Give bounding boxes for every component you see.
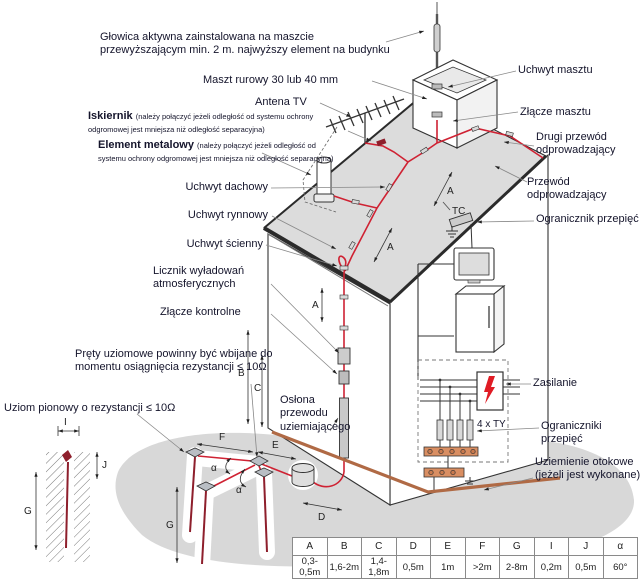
label-down-conductor: Przewód odprowadzający xyxy=(527,176,640,203)
mast-joint xyxy=(432,112,442,117)
col-f: F xyxy=(465,538,500,556)
tv-set xyxy=(454,248,494,283)
spark-gap-title: Iskiernik xyxy=(88,110,133,122)
val-b: 1,6-2m xyxy=(327,556,362,579)
fridge xyxy=(456,286,504,352)
col-j: J xyxy=(569,538,604,556)
dim-f: F xyxy=(219,432,225,443)
table-header-row: A B C D E F G I J α xyxy=(293,538,638,556)
label-ring-earth: Uziemienie otokowe (jeżeli jest wykonane… xyxy=(535,456,640,483)
val-e: 1m xyxy=(431,556,466,579)
active-head xyxy=(434,24,440,52)
label-mast-joint: Złącze masztu xyxy=(520,106,591,119)
vertical-earth-detail xyxy=(46,450,90,562)
label-surge-arrester: Ogranicznik przepięć xyxy=(536,213,640,226)
label-surge-arresters: Ograniczniki przepięć xyxy=(541,420,640,447)
dim-alpha2: α xyxy=(236,485,242,496)
dim-d: D xyxy=(318,512,325,523)
val-g: 2-8m xyxy=(500,556,535,579)
lightning-protection-diagram: B C A A A F E D G G I J α α TC xyxy=(0,0,640,579)
col-alpha: α xyxy=(603,538,638,556)
metal-element-title: Element metalowy xyxy=(98,139,194,151)
dim-g-left: G xyxy=(24,506,32,517)
label-tv-antenna: Antena TV xyxy=(255,96,307,109)
lightning-counter xyxy=(338,348,350,364)
col-i: I xyxy=(534,538,569,556)
col-g: G xyxy=(500,538,535,556)
mast-bracket xyxy=(432,84,442,89)
label-metal-element: Element metalowy (należy połączyć jeżeli… xyxy=(98,139,336,166)
dim-g-right: G xyxy=(166,520,174,531)
col-b: B xyxy=(327,538,362,556)
dim-e: E xyxy=(272,440,279,451)
dim-alpha1: α xyxy=(211,463,217,474)
val-j: 0,5m xyxy=(569,556,604,579)
dim-a-wall: A xyxy=(312,300,319,311)
dim-a-roof2: A xyxy=(387,242,394,253)
val-c: 1,4-1,8m xyxy=(362,556,397,579)
val-alpha: 60° xyxy=(603,556,638,579)
inspection-well xyxy=(292,464,314,487)
label-conductor-cover: Osłona przewodu uziemiającego xyxy=(280,394,360,434)
dimensions-table: A B C D E F G I J α 0,3-0,5m 1,6-2m 1,4-… xyxy=(292,537,638,579)
col-a: A xyxy=(293,538,328,556)
val-i: 0,2m xyxy=(534,556,569,579)
test-joint xyxy=(339,371,349,384)
val-a: 0,3-0,5m xyxy=(293,556,328,579)
label-strike-counter: Licznik wyładowań atmosferycznych xyxy=(153,265,271,292)
dim-a-roof1: A xyxy=(447,186,454,197)
label-earth-rods-note: Pręty uziomowe powinny być wbijane do mo… xyxy=(75,348,275,375)
label-mast-holder: Uchwyt masztu xyxy=(518,64,593,77)
label-gutter-holder: Uchwyt rynnowy xyxy=(153,209,268,222)
val-d: 0,5m xyxy=(396,556,431,579)
tc-label: TC xyxy=(452,206,465,217)
val-f: >2m xyxy=(465,556,500,579)
label-test-joint: Złącze kontrolne xyxy=(160,306,270,319)
dim-i: I xyxy=(64,417,67,428)
label-4xty: 4 x TY xyxy=(477,419,506,431)
col-e: E xyxy=(431,538,466,556)
label-spark-gap: Iskiernik (należy połączyć jeżeli odległ… xyxy=(88,110,350,137)
dim-j: J xyxy=(102,460,107,471)
label-active-head: Głowica aktywna zainstalowana na maszcie… xyxy=(100,31,400,58)
col-d: D xyxy=(396,538,431,556)
label-vertical-earth: Uziom pionowy o rezystancji ≤ 10Ω xyxy=(4,402,244,415)
label-roof-holder: Uchwyt dachowy xyxy=(158,181,268,194)
table-values-row: 0,3-0,5m 1,6-2m 1,4-1,8m 0,5m 1m >2m 2-8… xyxy=(293,556,638,579)
label-power-supply: Zasilanie xyxy=(533,377,577,390)
label-wall-holder: Uchwyt ścienny xyxy=(158,238,263,251)
dim-c: C xyxy=(254,383,261,394)
col-c: C xyxy=(362,538,397,556)
label-mast: Maszt rurowy 30 lub 40 mm xyxy=(203,74,373,87)
label-second-down-conductor: Drugi przewód odprowadzający xyxy=(536,131,638,158)
